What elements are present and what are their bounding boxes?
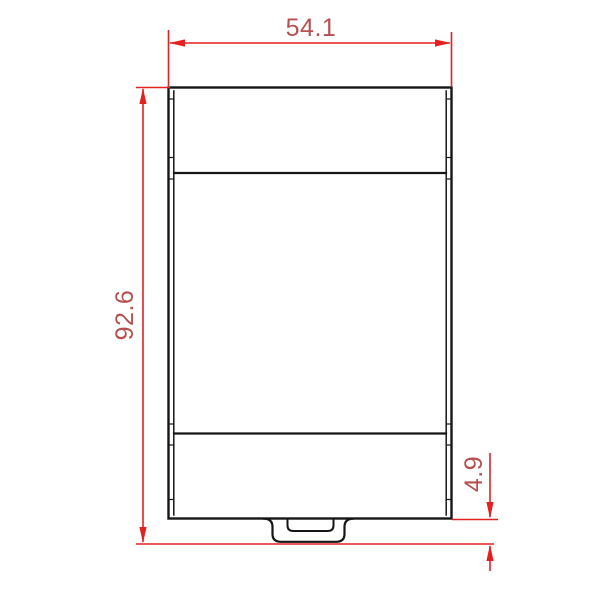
width-arrow-left [169,39,185,46]
technical-drawing-canvas: 54.1 92.6 4.9 [0,0,600,600]
technical-drawing-page: 54.1 92.6 4.9 [0,0,600,600]
width-arrow-right [435,39,451,46]
width-dimension-label: 54.1 [286,14,337,42]
height-arrow-bottom [139,527,146,543]
tab-arrow-down [486,502,493,519]
tab-dimension-label: 4.9 [460,456,488,492]
tab-arrow-up [486,545,493,562]
body-outer-rectangle [169,88,452,519]
dimension-tab-depth: 4.9 [452,453,498,571]
height-arrow-top [139,88,146,104]
part-body-outline [169,88,452,542]
dimension-width: 54.1 [169,14,452,86]
din-rail-tab-notch [288,519,334,531]
height-dimension-label: 92.6 [111,290,139,341]
